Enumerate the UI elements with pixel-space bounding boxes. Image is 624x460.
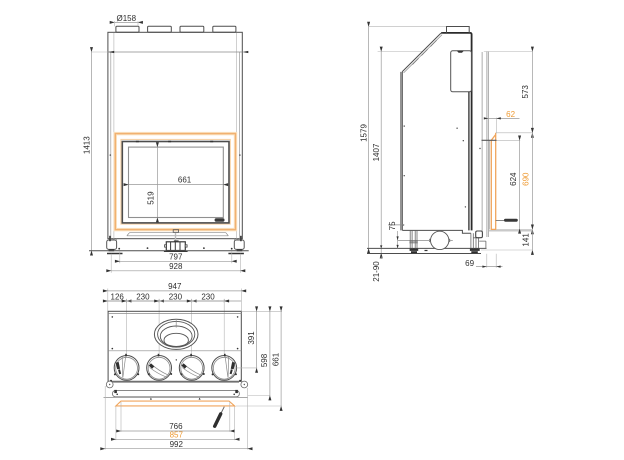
- svg-text:857: 857: [170, 431, 184, 440]
- svg-text:573: 573: [521, 85, 530, 99]
- svg-text:230: 230: [201, 293, 215, 302]
- svg-text:230: 230: [169, 293, 183, 302]
- svg-text:519: 519: [147, 191, 156, 205]
- svg-text:62: 62: [506, 110, 515, 119]
- svg-text:1579: 1579: [359, 124, 368, 142]
- svg-text:598: 598: [260, 353, 269, 367]
- svg-text:947: 947: [168, 282, 182, 291]
- svg-text:21-90: 21-90: [372, 261, 381, 282]
- svg-text:141: 141: [522, 233, 531, 247]
- svg-text:391: 391: [247, 331, 256, 345]
- svg-text:1413: 1413: [83, 136, 92, 154]
- svg-text:797: 797: [169, 252, 183, 261]
- svg-text:928: 928: [169, 262, 183, 271]
- svg-text:Ø158: Ø158: [117, 14, 137, 23]
- svg-text:126: 126: [111, 293, 125, 302]
- svg-text:1407: 1407: [372, 143, 381, 161]
- svg-text:69: 69: [465, 259, 474, 268]
- svg-text:661: 661: [271, 352, 280, 366]
- svg-text:992: 992: [170, 440, 184, 449]
- svg-text:624: 624: [509, 172, 518, 186]
- svg-text:230: 230: [136, 293, 150, 302]
- svg-text:75: 75: [388, 221, 397, 230]
- svg-text:690: 690: [522, 172, 531, 186]
- svg-text:661: 661: [178, 176, 192, 185]
